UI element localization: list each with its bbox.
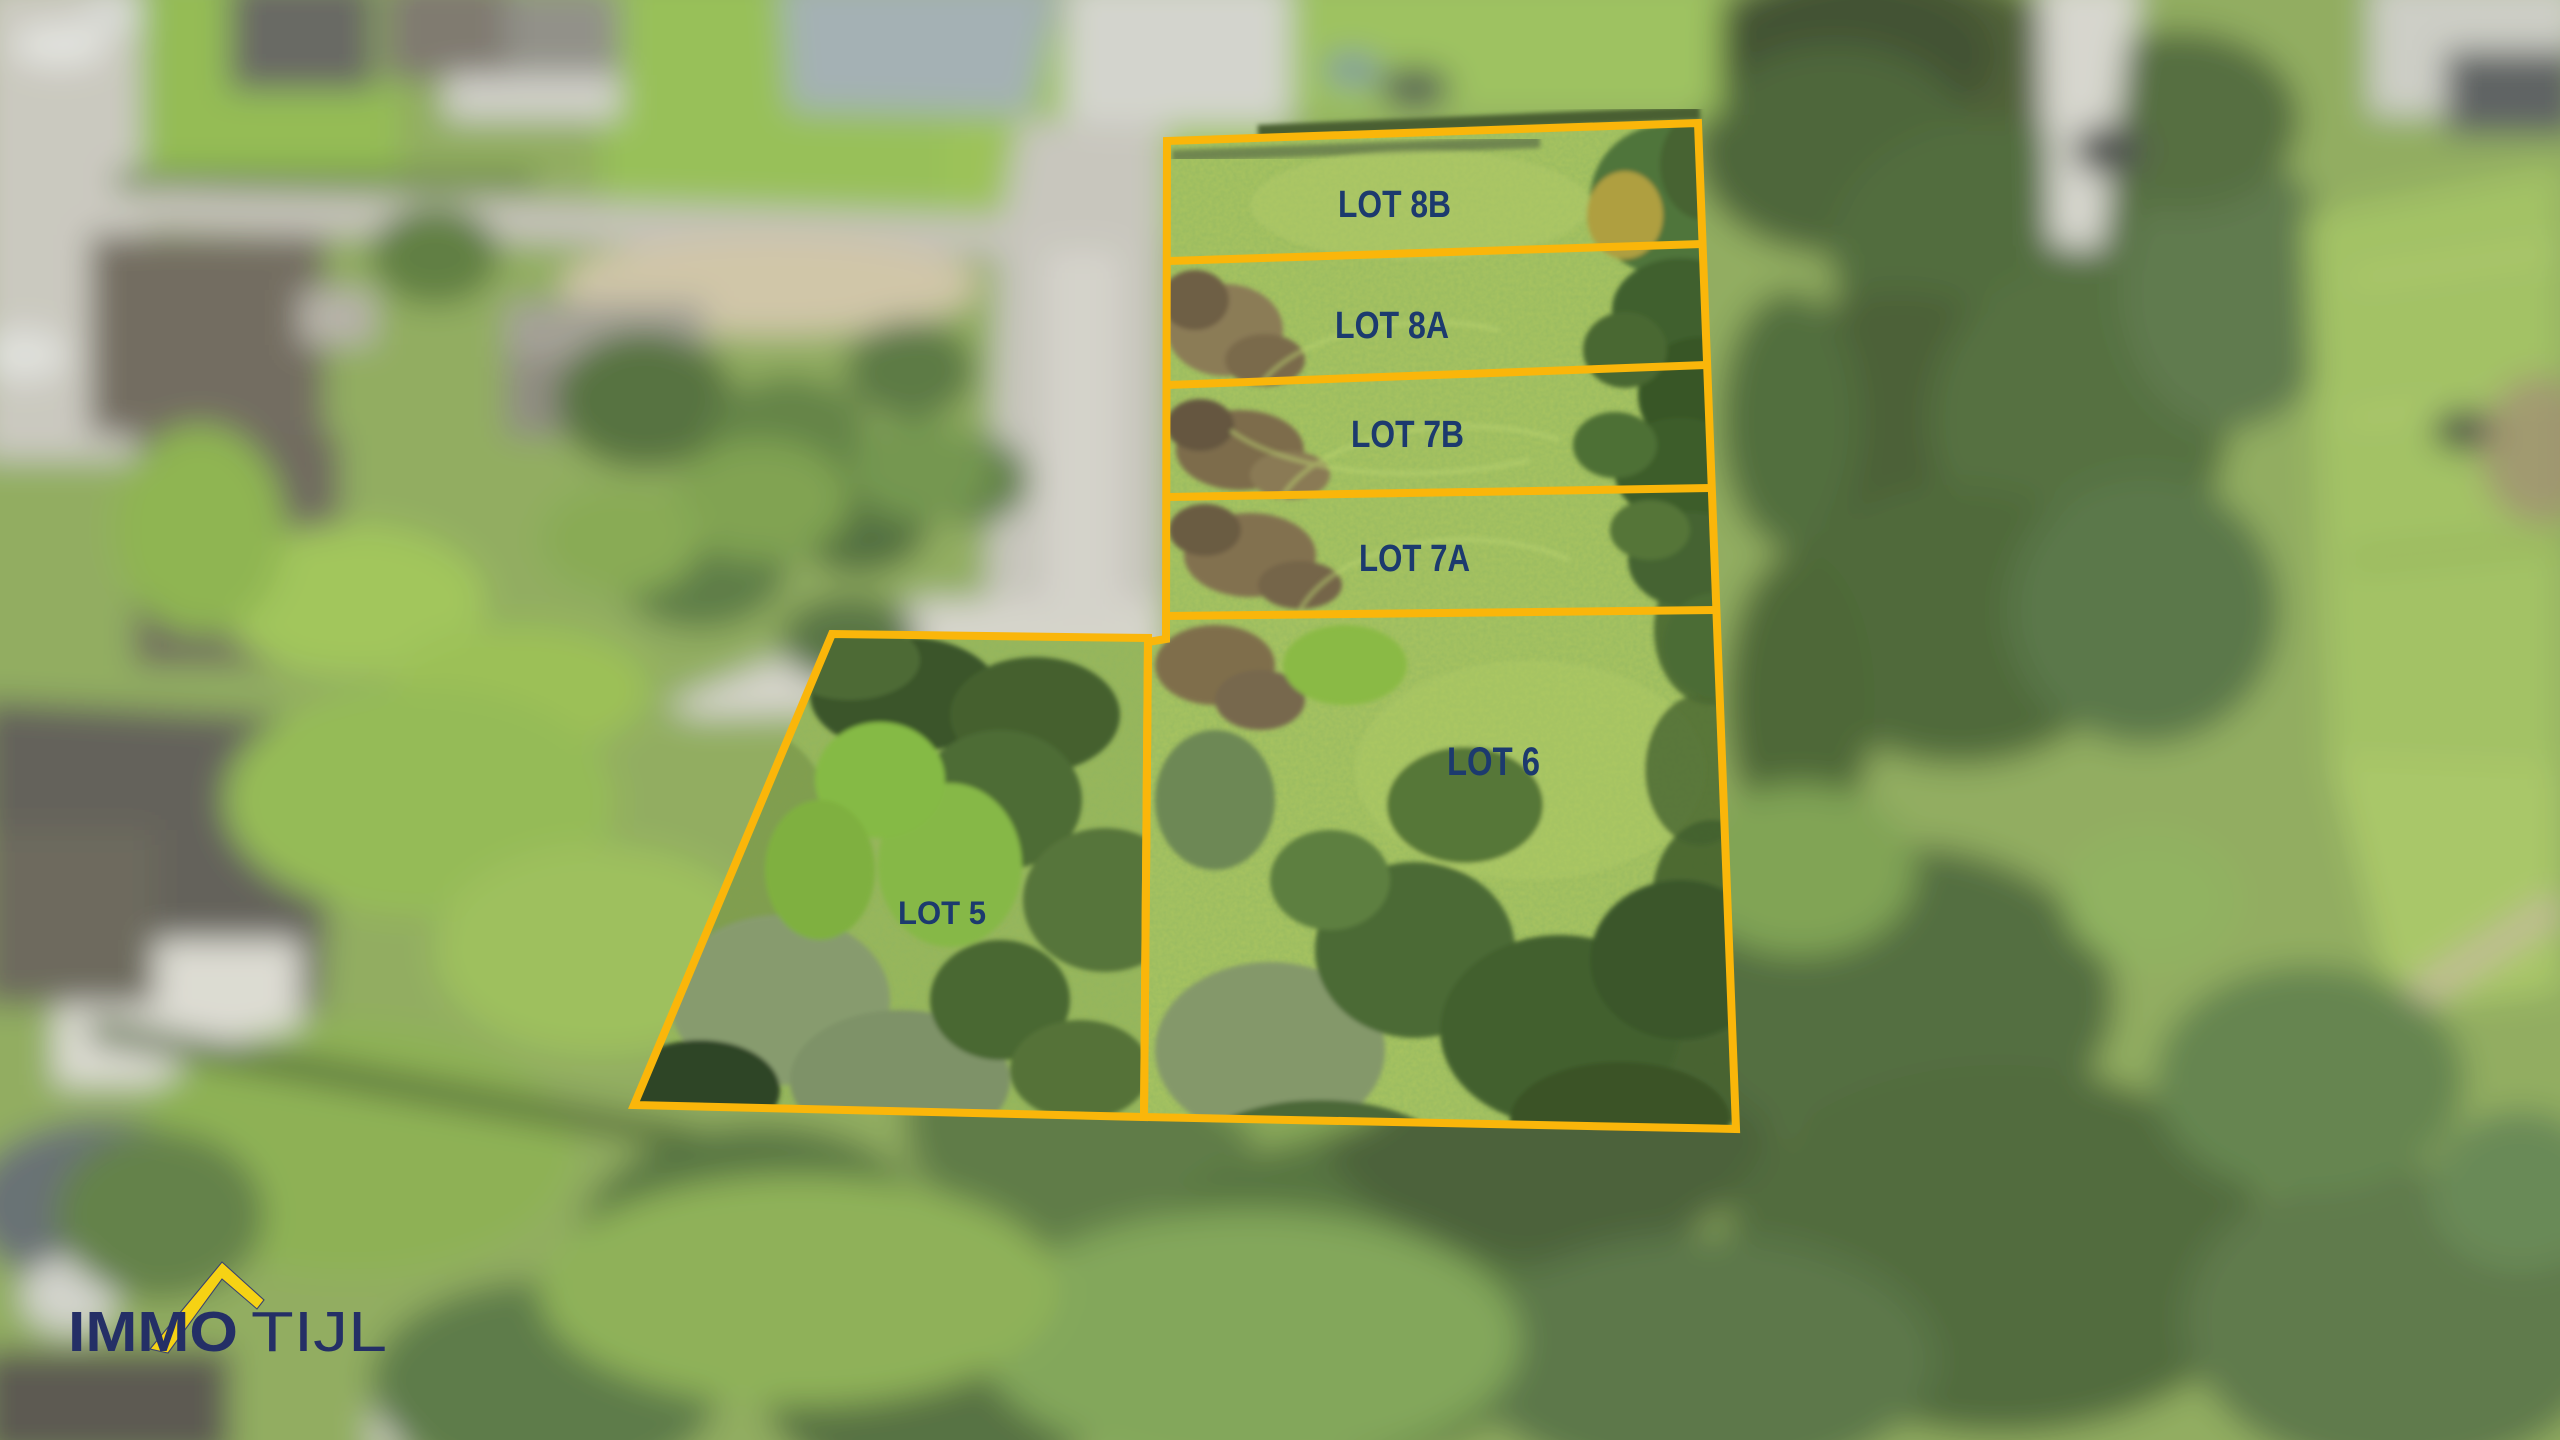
svg-text:LOT 7A: LOT 7A	[1359, 538, 1470, 580]
svg-text:LOT 8B: LOT 8B	[1338, 184, 1451, 226]
svg-text:IMMO: IMMO	[68, 1300, 238, 1364]
svg-text:LOT 6: LOT 6	[1447, 740, 1540, 784]
svg-text:LOT 8A: LOT 8A	[1335, 305, 1449, 347]
svg-text:LOT 5: LOT 5	[898, 895, 986, 931]
svg-text:LOT 7B: LOT 7B	[1351, 414, 1464, 456]
svg-text:TIJL: TIJL	[251, 1300, 387, 1364]
